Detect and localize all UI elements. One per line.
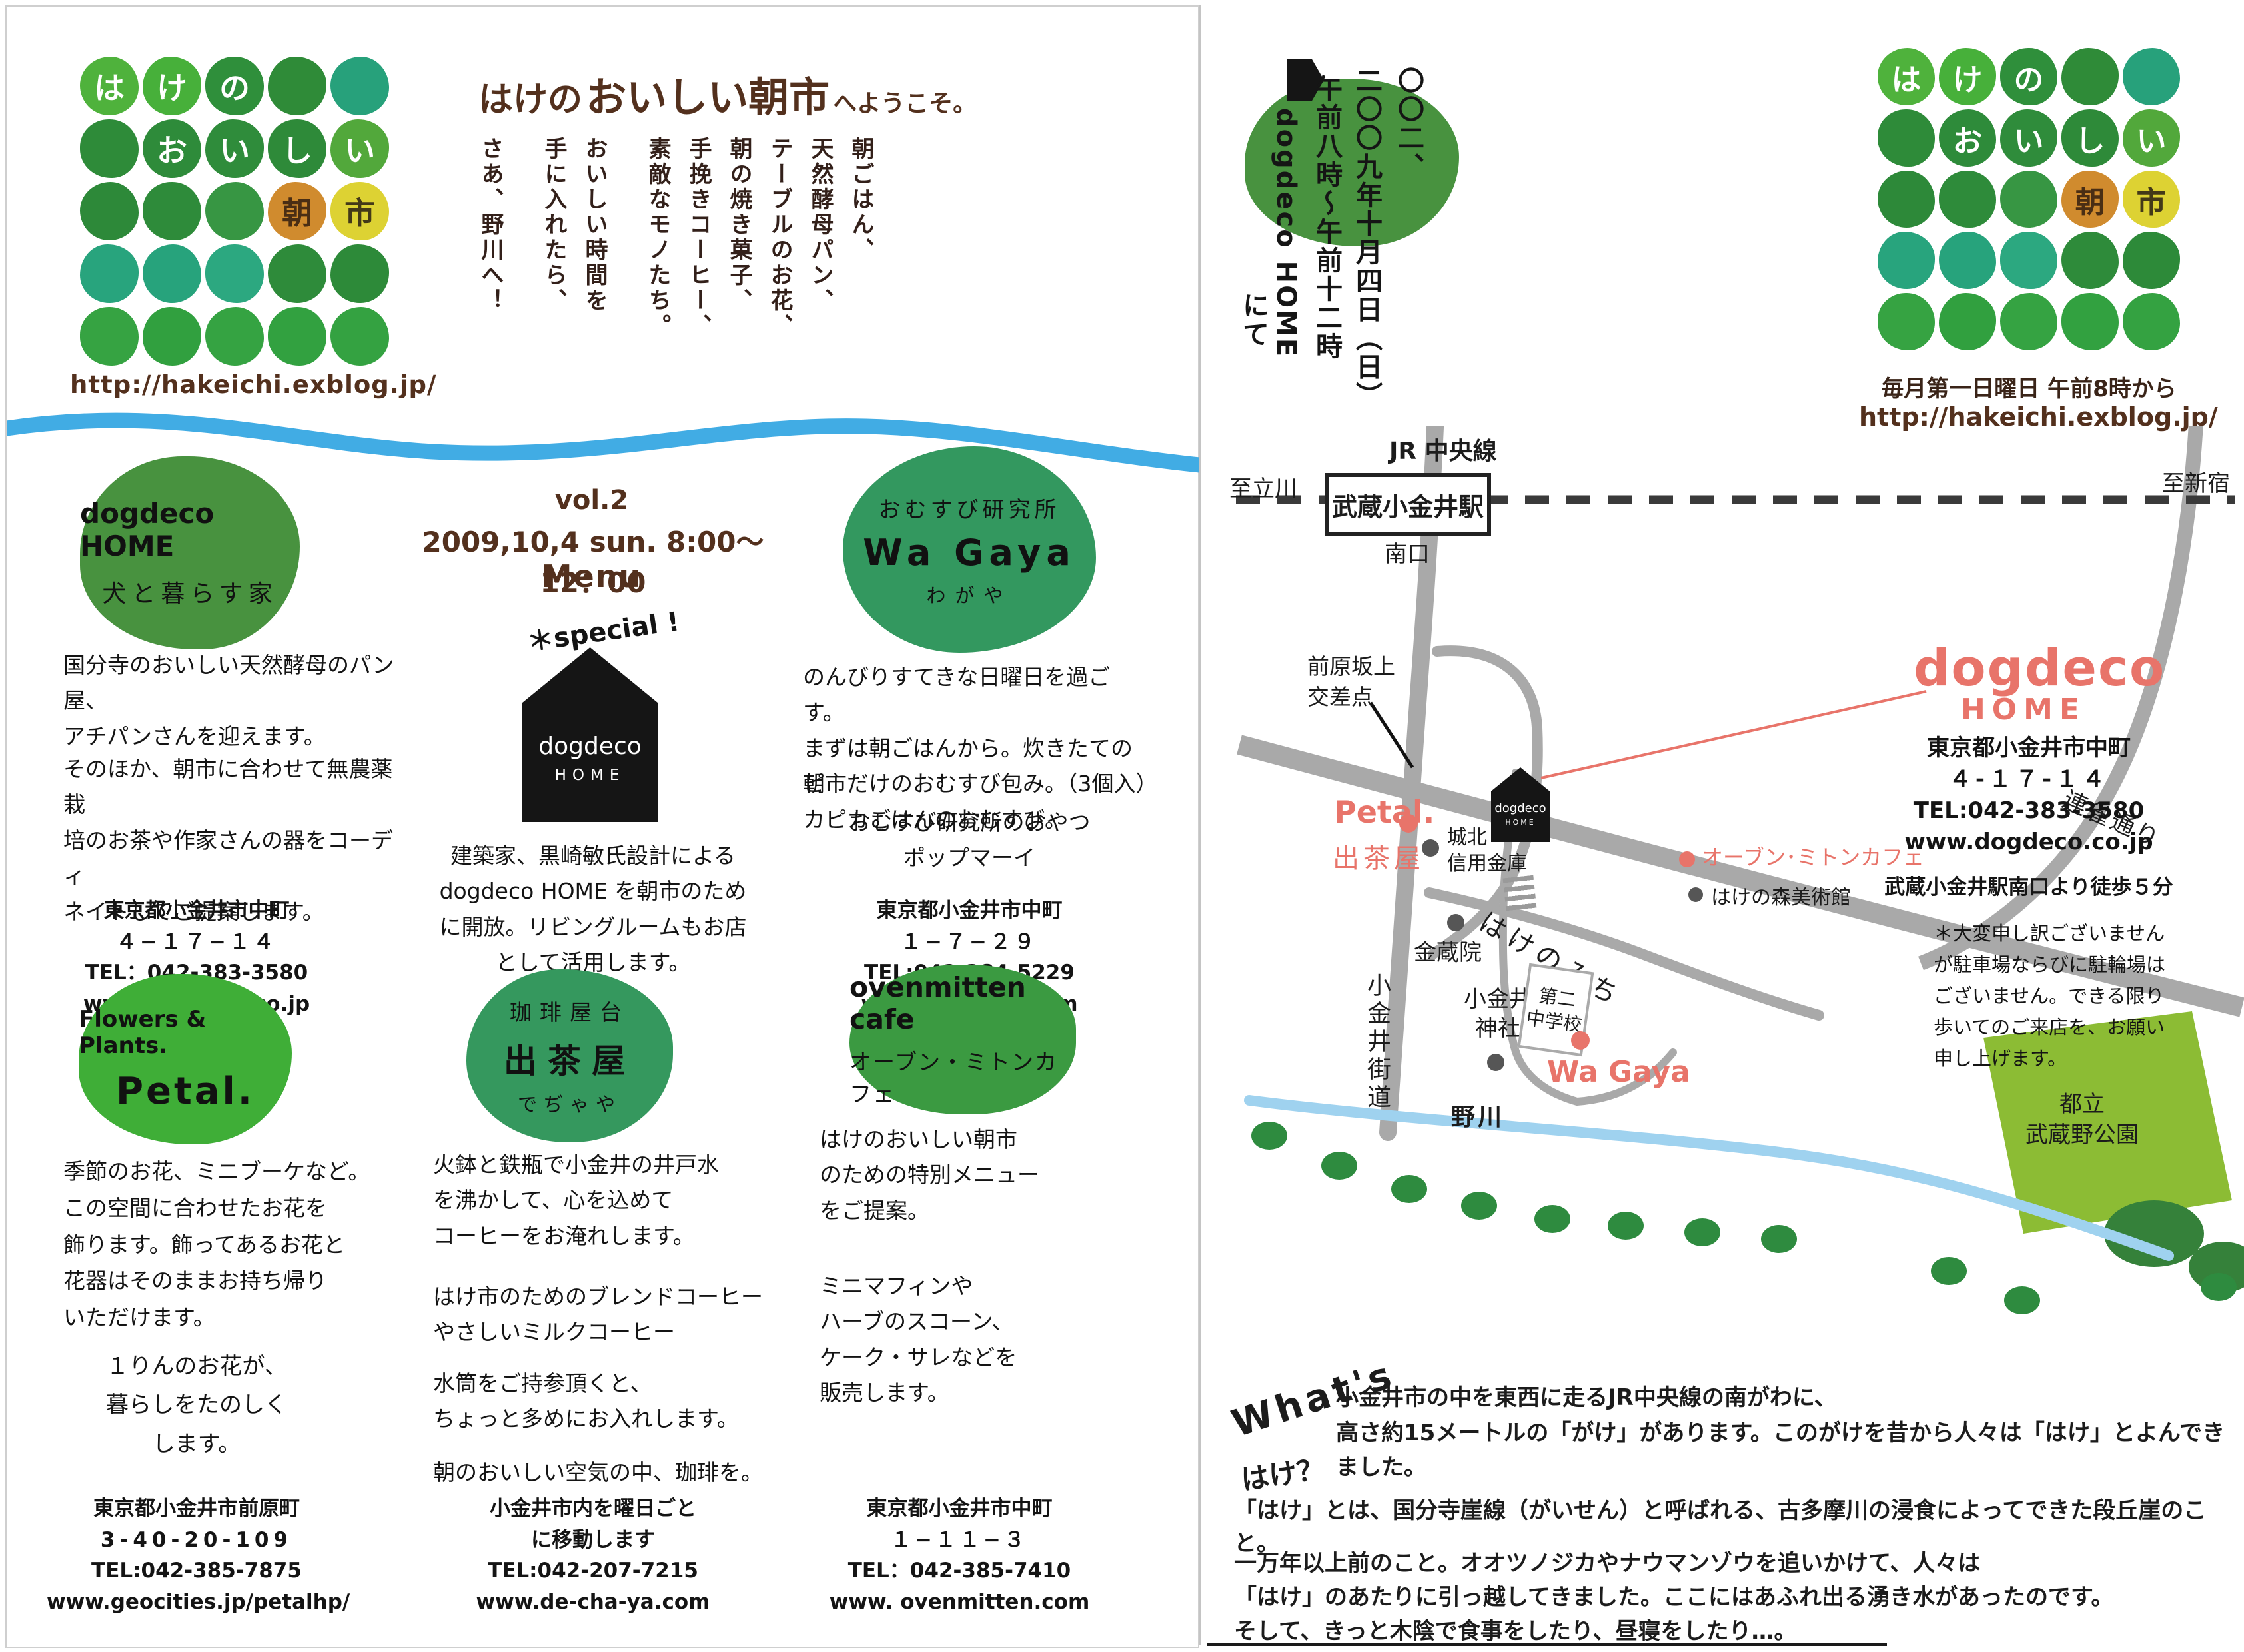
konzoin-dot [1447, 914, 1464, 931]
address-line: に移動します [453, 1525, 733, 1556]
logo-cell [80, 119, 139, 178]
date-column: dogdeco HOME [1271, 108, 1301, 358]
koganei-kaido-label: 小金井街道 [1359, 973, 1394, 1112]
address-line: www. ovenmitten.com [820, 1587, 1099, 1618]
logo-cell [143, 244, 201, 303]
info-dogdeco-title: dogdeco [1914, 638, 2165, 697]
dechaya-circle-kana: でぢゃや [518, 1089, 622, 1117]
logo-cell [2061, 48, 2119, 105]
logo-cell-char: は [80, 57, 139, 115]
address-line: www.de-cha-ya.com [453, 1587, 733, 1618]
whats-hake-label: はけ？ [1238, 1447, 1327, 1499]
logo-cell [330, 57, 389, 115]
info-home-title: HOME [1914, 693, 2133, 727]
dogdeco-circle: dogdeco HOME 犬と暮らす家 [80, 456, 300, 649]
petal-circle-sub: Flowers & Plants. [79, 1006, 292, 1059]
logo-cell-char: い [330, 119, 389, 178]
logo-cell-char: 市 [2123, 171, 2180, 228]
logo-cell-char: し [268, 119, 326, 178]
dechaya-circle-title: 出茶屋 [504, 1034, 636, 1082]
logo-cell [2061, 232, 2119, 289]
welcome-line: 朝の焼き菓子、 [723, 137, 756, 366]
welcome-line: 朝ごはん、 [845, 137, 877, 366]
dechaya-paragraph-4: 朝のおいしい空気の中、珈琲を。 [433, 1455, 793, 1490]
logo-cell [2123, 232, 2180, 289]
petal-map-label: Petal. [1334, 794, 1434, 830]
house-logo-text: dogdeco [1494, 801, 1546, 815]
dechaya-address: 小金井市内を曜日ごと に移動します TEL:042-207-7215 www.d… [453, 1493, 733, 1617]
house-logo-text: dogdeco [538, 733, 642, 760]
dechaya-paragraph-2: はけ市のためのブレンドコーヒー やさしいミルクコーヒー [433, 1279, 780, 1350]
page-divider [1199, 5, 1201, 1645]
flyer-canvas: はけのおいしい朝市 http://hakeichi.exblog.jp/ はけの… [0, 0, 2244, 1652]
address-line: www.geocities.jp/petalhp/ [47, 1587, 346, 1618]
logo-cell [2123, 48, 2180, 105]
museum-dot [1688, 887, 1703, 902]
welcome-line: 手に入れたら、 [538, 137, 570, 366]
event-paragraph: 建築家、黒崎敏氏設計による dogdeco HOME を朝市のため に開放。リビ… [420, 838, 766, 981]
address-line: １−１１−３ [820, 1525, 1099, 1556]
nogawa-label: 野川 [1451, 1098, 1504, 1132]
dechaya-paragraph-3: 水筒をご持参頂くと、 ちょっと多めにお入れします。 [433, 1366, 780, 1437]
logo-cell [1878, 171, 1935, 228]
logo-cell-char: の [2000, 48, 2057, 105]
petal-paragraph-1: 季節のお花、ミニブーケなど。 この空間に合わせたお花を 飾ります。飾ってあるお花… [63, 1154, 390, 1336]
tree-dot [1761, 1225, 1797, 1253]
logo-cell [205, 244, 264, 303]
tree-dot [1391, 1175, 1427, 1203]
logo-cell-char: け [143, 57, 201, 115]
wagaya-map-dot [1571, 1031, 1590, 1050]
tree-dot [1684, 1218, 1720, 1246]
address-line: 東京都小金井市中町 [63, 895, 330, 927]
petal-paragraph-2: １りんのお花が、 暮らしをたのしく します。 [63, 1347, 330, 1463]
logo-cell [2000, 232, 2057, 289]
station-box: 武蔵小金井駅 [1325, 473, 1491, 536]
event-vol: vol.2 [435, 485, 748, 516]
logo-cell-char: い [205, 119, 264, 178]
address-line: 小金井市内を曜日ごと [453, 1493, 733, 1525]
ovenmitten-paragraph-2: ミニマフィンや ハーブのスコーン、 ケーク・サレなどを 販売します。 [820, 1268, 1126, 1411]
dogdeco-paragraph-1: 国分寺のおいしい天然酵母のパン屋、 アチパンさんを迎えます。 [63, 647, 396, 754]
logo-cell [2061, 293, 2119, 350]
ovenmitten-circle: ovenmitten cafe オーブン・ミトンカフェ [849, 965, 1076, 1114]
ovenmitten-circle-title: ovenmitten cafe [849, 971, 1076, 1035]
mitten-cafe-dot [1679, 851, 1695, 867]
logo-cell-char: い [2000, 109, 2057, 167]
welcome-line: おいしい時間を [578, 137, 611, 366]
welcome-line: テーブルのお花、 [764, 137, 796, 366]
dechaya-circle: 珈琲屋台 出茶屋 でぢゃや [466, 969, 673, 1142]
logo-cell [330, 244, 389, 303]
logo-cell [1878, 109, 1935, 167]
date-column: 二〇〇九年十月四日（日） [1347, 67, 1386, 410]
tree-dot [1931, 1257, 1967, 1285]
logo-cell-char: は [1878, 48, 1935, 105]
address-line: TEL:042-383-3580 [1886, 795, 2172, 827]
house-logo-text: HOME [555, 767, 626, 784]
house-logo-text: HOME [1505, 818, 1535, 827]
petal-map-dot [1399, 814, 1418, 833]
logo-cell [80, 307, 139, 366]
address-line: １−７−２９ [836, 927, 1103, 958]
logo-cell-char: 朝 [268, 182, 326, 240]
date-column: にて [1234, 292, 1273, 349]
south-exit-label: 南口 [1385, 536, 1430, 568]
wagaya-circle-sub: おむすび研究所 [879, 492, 1061, 524]
tree-dot [1608, 1212, 1644, 1240]
info-address: 東京都小金井市中町 ４-１７-１４ TEL:042-383-3580 www.d… [1886, 733, 2172, 858]
logo-cell [1939, 232, 1996, 289]
logo-cell-char: お [143, 119, 201, 178]
konzoin-label: 金蔵院 [1414, 934, 1482, 967]
wagaya-circle-kana: わがや [926, 580, 1012, 608]
title-part-2: おいしい朝市 [586, 74, 830, 121]
maehara-label: 前原坂上 交差点 [1307, 651, 1395, 713]
ovenmitten-paragraph-1: はけのおいしい朝市 のための特別メニュー をご提案。 [820, 1122, 1126, 1228]
to-shinjuku-label: 至新宿 [2162, 465, 2230, 498]
title-part-3: へようこそ。 [833, 90, 977, 117]
wagaya-paragraph-3: おむすび研究所のおやつ ポップマーイ [803, 805, 1136, 876]
address-line: 東京都小金井市中町 [1886, 733, 2172, 764]
logo-cell-char: い [2123, 109, 2180, 167]
logo-cell-char: の [205, 57, 264, 115]
logo-cell-char: 市 [330, 182, 389, 240]
logo-cell [330, 307, 389, 366]
school-label: 第二 中学校 [1524, 982, 1586, 1038]
petal-circle-title: Petal. [116, 1070, 255, 1113]
petal-address: 東京都小金井市前原町 3-40-20-109 TEL:042-385-7875 … [47, 1493, 346, 1617]
whats-paragraph-3: 一万年以上前のこと。オオツノジカやナウマンゾウを追いかけて、人々は 「はけ」のあ… [1234, 1547, 2233, 1649]
dogdeco-circle-sub: 犬と暮らす家 [102, 574, 277, 609]
station-name: 武蔵小金井駅 [1332, 486, 1484, 523]
info-note: ＊大変申し訳ございません が駐車場ならびに駐輪場は ございません。できる限り 歩… [1934, 918, 2244, 1074]
logo-cell [268, 57, 326, 115]
tree-dot [2201, 1273, 2237, 1301]
park-label: 都立 武蔵野公園 [2005, 1090, 2159, 1151]
address-line: ４-１７-１４ [1886, 764, 2172, 795]
address-line: ４−１７−１４ [63, 927, 330, 958]
address-line: 東京都小金井市中町 [836, 895, 1103, 927]
logo-cell [2123, 293, 2180, 350]
dogdeco-leader-line [1541, 691, 1926, 778]
logo-cell [1939, 171, 1996, 228]
logo-grid-small: はけのおいしい朝市 [1878, 48, 2180, 350]
to-tachikawa-label: 至立川 [1229, 470, 1297, 503]
dechaya-map-label: 出茶屋 [1333, 837, 1424, 875]
whats-paragraph-1: 小金井市の中を東西に走るJR中央線の南がわに、 高さ約15メートルの「がけ」があ… [1336, 1380, 2235, 1485]
welcome-vertical-text: 朝ごはん、 天然酵母パン、 テーブルのお花、 朝の焼き菓子、 手挽きコーヒー、 … [466, 137, 877, 366]
info-walk: 武蔵小金井駅南口より徒歩５分 [1879, 870, 2179, 900]
logo-cell [80, 182, 139, 240]
ovenmitten-circle-sub: オーブン・ミトンカフェ [849, 1044, 1076, 1108]
address-line: TEL：042-385-7410 [820, 1555, 1099, 1587]
tree-dot [1534, 1205, 1570, 1233]
logo-cell [1878, 293, 1935, 350]
logo-cell-char: し [2061, 109, 2119, 167]
jr-line-label: JR 中央線 [1389, 432, 1497, 466]
schedule-text: 毎月第一日曜日 午前8時から [1859, 370, 2199, 403]
welcome-line: 天然酵母パン、 [804, 137, 837, 366]
welcome-line: 素敵なモノたち。 [642, 137, 674, 366]
logo-cell [268, 307, 326, 366]
page-title: はけの おいしい朝市 へようこそ。 [478, 64, 977, 123]
railway-crossing-icon [1503, 875, 1537, 912]
welcome-line: 手挽きコーヒー、 [682, 137, 715, 366]
wagaya-map-label: Wa Gaya [1547, 1055, 1690, 1089]
johoku-dot [1422, 839, 1439, 857]
logo-cell [205, 307, 264, 366]
tree-dot [2004, 1286, 2040, 1314]
tree-dot [1251, 1122, 1287, 1150]
event-menu: Menu [435, 558, 748, 594]
logo-cell [268, 244, 326, 303]
logo-cell [205, 182, 264, 240]
logo-grid: はけのおいしい朝市 [80, 57, 389, 366]
address-line: 3-40-20-109 [47, 1525, 346, 1556]
date-column: 〇〇二、 [1389, 67, 1428, 181]
logo-cell [2000, 293, 2057, 350]
address-line: TEL:042-207-7215 [453, 1555, 733, 1587]
logo-cell-char: お [1939, 109, 1996, 167]
logo-cell [80, 244, 139, 303]
tree-dot [1321, 1152, 1357, 1180]
logo-cell [143, 307, 201, 366]
logo-cell [1878, 232, 1935, 289]
logo-cell-char: け [1939, 48, 1996, 105]
shrine-dot [1487, 1054, 1504, 1071]
dechaya-circle-sub: 珈琲屋台 [510, 995, 630, 1027]
dechaya-paragraph-1: 火鉢と鉄瓶で小金井の井戸水 を沸かして、心を込めて コーヒーをお淹れします。 [433, 1147, 780, 1254]
logo-cell [1939, 293, 1996, 350]
address-line: www.dogdeco.co.jp [1886, 827, 2172, 858]
logo-url: http://hakeichi.exblog.jp/ [70, 370, 390, 399]
logo-cell [2000, 171, 2057, 228]
museum-label: はけの森美術館 [1711, 881, 1851, 910]
welcome-line: さあ、野川へ！ [474, 137, 507, 366]
petal-circle: Flowers & Plants. Petal. [79, 974, 292, 1144]
date-column: 午前八時〜午前十二時 [1307, 75, 1346, 361]
wagaya-circle-title: Wa Gaya [863, 532, 1076, 574]
logo-cell-char: 朝 [2061, 171, 2119, 228]
dogdeco-circle-title: dogdeco HOME [80, 497, 300, 562]
address-line: 東京都小金井市前原町 [47, 1493, 346, 1525]
wagaya-circle: おむすび研究所 Wa Gaya わがや [843, 446, 1096, 653]
ovenmitten-address: 東京都小金井市中町 １−１１−３ TEL：042-385-7410 www. o… [820, 1493, 1099, 1617]
logo-cell [143, 182, 201, 240]
wagaya-paragraph-2: 朝市だけのおむすび包み。（3個入） [803, 766, 1149, 801]
address-line: TEL:042-385-7875 [47, 1555, 346, 1587]
tree-dot [1461, 1192, 1497, 1220]
address-line: 東京都小金井市中町 [820, 1493, 1099, 1525]
title-part-1: はけの [478, 80, 582, 120]
